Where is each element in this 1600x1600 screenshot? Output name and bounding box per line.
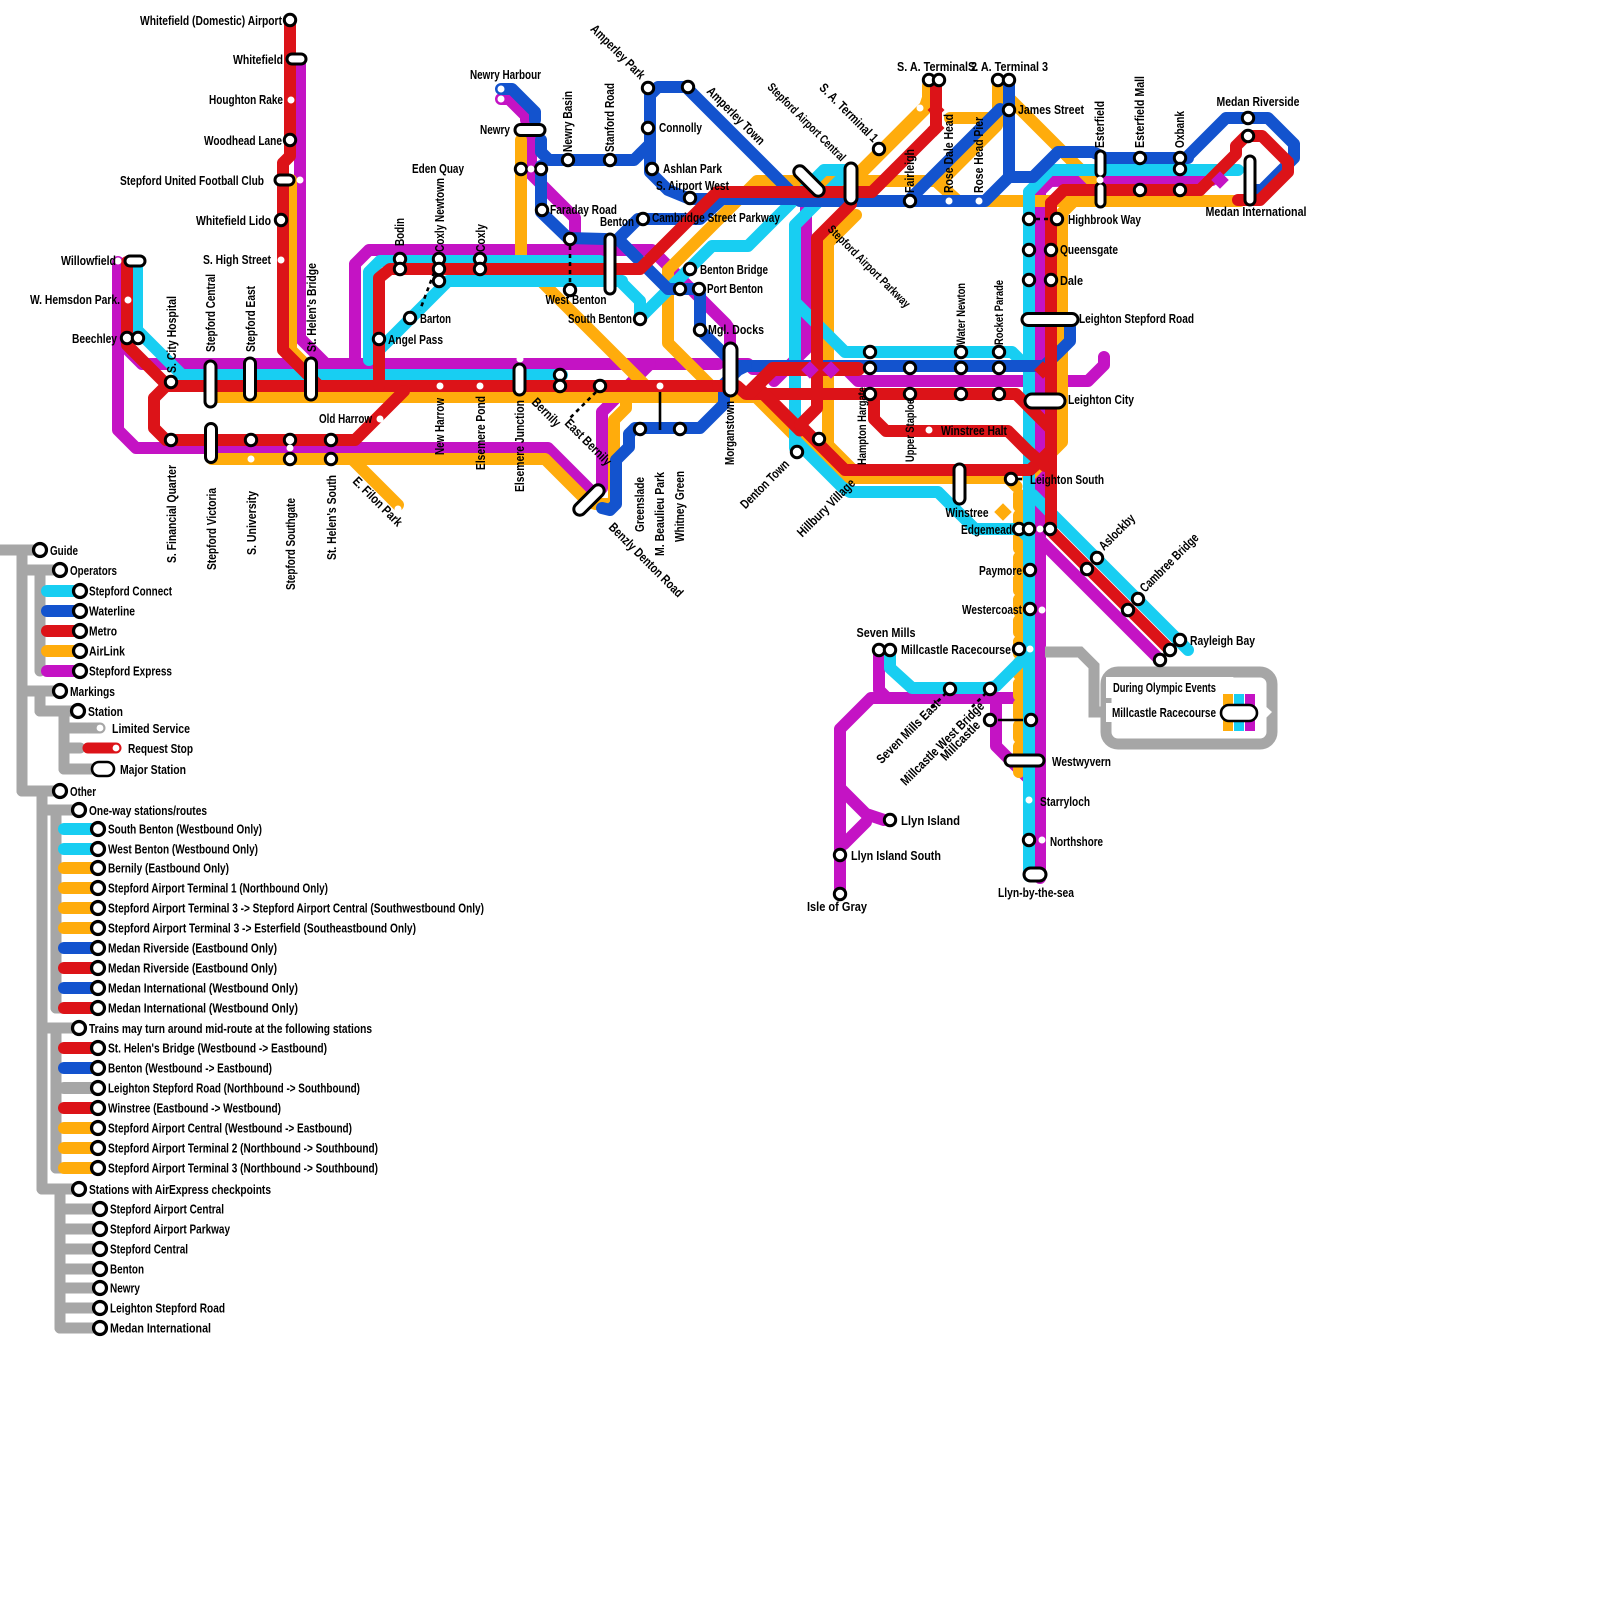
svg-text:South Benton: South Benton xyxy=(568,311,632,326)
svg-text:Isle of Gray: Isle of Gray xyxy=(807,899,868,914)
svg-text:Medan Riverside (Eastbound Onl: Medan Riverside (Eastbound Only) xyxy=(108,941,277,956)
svg-text:Whitney Green: Whitney Green xyxy=(672,471,687,542)
svg-text:Stepford Central: Stepford Central xyxy=(110,1242,188,1257)
svg-text:Oxbank: Oxbank xyxy=(1172,110,1187,148)
svg-text:West Benton: West Benton xyxy=(546,292,607,307)
svg-text:West Benton (Westbound Only): West Benton (Westbound Only) xyxy=(108,842,258,857)
svg-text:Newry: Newry xyxy=(110,1281,141,1296)
svg-text:Mgl. Docks: Mgl. Docks xyxy=(708,322,764,337)
svg-text:During Olympic Events: During Olympic Events xyxy=(1113,680,1216,695)
svg-text:Millcastle Racecourse: Millcastle Racecourse xyxy=(901,642,1011,657)
svg-text:Leighton Stepford Road: Leighton Stepford Road xyxy=(110,1301,225,1316)
svg-text:Markings: Markings xyxy=(70,684,115,699)
svg-text:Stations with AirExpress check: Stations with AirExpress checkpoints xyxy=(89,1182,271,1197)
svg-text:Stepford Airport Terminal 2 (N: Stepford Airport Terminal 2 (Northbound … xyxy=(108,1141,378,1156)
svg-text:Coxly Newtown: Coxly Newtown xyxy=(432,178,447,252)
svg-text:Trains may turn around mid-rou: Trains may turn around mid-route at the … xyxy=(89,1021,372,1036)
svg-text:Beechley: Beechley xyxy=(72,331,118,346)
svg-text:Water Newton: Water Newton xyxy=(954,283,968,345)
svg-text:Major Station: Major Station xyxy=(120,762,186,777)
svg-text:Stepford Connect: Stepford Connect xyxy=(89,584,173,599)
svg-text:Hampton Hargate: Hampton Hargate xyxy=(855,387,869,465)
svg-text:Dale: Dale xyxy=(1060,273,1083,288)
svg-text:Highbrook Way: Highbrook Way xyxy=(1068,212,1142,227)
svg-text:Medan Riverside (Eastbound Onl: Medan Riverside (Eastbound Only) xyxy=(108,961,277,976)
svg-text:Seven Mills: Seven Mills xyxy=(857,625,916,640)
svg-text:Starryloch: Starryloch xyxy=(1040,794,1090,809)
svg-text:Benton: Benton xyxy=(110,1262,144,1277)
svg-text:S. Airport West: S. Airport West xyxy=(656,178,730,193)
svg-text:Medan International (Westbound: Medan International (Westbound Only) xyxy=(108,981,298,996)
svg-text:S. A. Terminal 2: S. A. Terminal 2 xyxy=(897,59,977,74)
svg-text:Willowfield: Willowfield xyxy=(61,253,116,268)
svg-text:Stepford Southgate: Stepford Southgate xyxy=(283,498,298,590)
svg-text:Llyn-by-the-sea: Llyn-by-the-sea xyxy=(998,885,1075,900)
svg-text:Medan International (Westbound: Medan International (Westbound Only) xyxy=(108,1001,298,1016)
svg-text:Leighton Stepford Road: Leighton Stepford Road xyxy=(1079,311,1194,326)
svg-text:Angel Pass: Angel Pass xyxy=(388,332,443,347)
svg-text:Leighton Stepford Road (Northb: Leighton Stepford Road (Northbound -> So… xyxy=(108,1081,360,1096)
svg-text:Stepford Airport Parkway: Stepford Airport Parkway xyxy=(110,1222,231,1237)
svg-text:Metro: Metro xyxy=(89,624,117,639)
svg-text:Benton (Westbound -> Eastbound: Benton (Westbound -> Eastbound) xyxy=(108,1061,272,1076)
svg-text:Operators: Operators xyxy=(70,563,117,578)
svg-text:Leighton South: Leighton South xyxy=(1030,472,1104,487)
svg-text:Benton: Benton xyxy=(600,214,634,229)
svg-text:Eden Quay: Eden Quay xyxy=(412,161,465,176)
svg-text:Old Harrow: Old Harrow xyxy=(319,411,373,426)
svg-text:Elsemere Pond: Elsemere Pond xyxy=(473,396,488,470)
svg-text:Paymore: Paymore xyxy=(979,563,1022,578)
svg-text:Medan International: Medan International xyxy=(110,1321,211,1336)
svg-text:Stepford Airport Terminal 3 (N: Stepford Airport Terminal 3 (Northbound … xyxy=(108,1161,378,1176)
svg-text:Edgemead: Edgemead xyxy=(961,522,1012,537)
svg-text:Other: Other xyxy=(70,784,96,799)
svg-text:Llyn Island South: Llyn Island South xyxy=(851,848,941,863)
svg-text:Waterline: Waterline xyxy=(89,604,135,619)
svg-text:Morganstown: Morganstown xyxy=(722,401,737,465)
svg-text:S. University: S. University xyxy=(244,490,259,555)
svg-text:Stepford Central: Stepford Central xyxy=(203,274,218,352)
svg-text:Elsemere Junction: Elsemere Junction xyxy=(512,400,527,492)
svg-text:Stepford Victoria: Stepford Victoria xyxy=(204,487,219,570)
svg-text:S. Financial Quarter: S. Financial Quarter xyxy=(164,465,179,563)
svg-text:Benton Bridge: Benton Bridge xyxy=(700,262,768,277)
svg-text:St. Helen's South: St. Helen's South xyxy=(324,475,339,560)
svg-text:Limited Service: Limited Service xyxy=(112,721,190,736)
svg-text:Stepford United Football Club: Stepford United Football Club xyxy=(120,173,264,188)
svg-text:Winstree (Eastbound -> Westbou: Winstree (Eastbound -> Westbound) xyxy=(108,1101,281,1116)
svg-text:Woodhead Lane: Woodhead Lane xyxy=(204,133,282,148)
svg-text:St. Helen's Bridge: St. Helen's Bridge xyxy=(304,263,319,352)
svg-text:Houghton Rake: Houghton Rake xyxy=(209,92,283,107)
svg-text:Stepford East: Stepford East xyxy=(243,285,258,352)
svg-text:Stepford Airport Central: Stepford Airport Central xyxy=(110,1202,224,1217)
svg-text:S. City Hospital: S. City Hospital xyxy=(164,296,179,373)
svg-text:Winstree Halt: Winstree Halt xyxy=(941,423,1008,438)
svg-text:Stepford Express: Stepford Express xyxy=(89,664,172,679)
svg-text:Stepford Airport Central (West: Stepford Airport Central (Westbound -> E… xyxy=(108,1121,352,1136)
svg-text:Ashlan Park: Ashlan Park xyxy=(663,161,723,176)
svg-text:Barton: Barton xyxy=(420,311,451,326)
svg-text:Llyn Island: Llyn Island xyxy=(901,813,960,828)
svg-text:South Benton (Westbound Only): South Benton (Westbound Only) xyxy=(108,822,262,837)
svg-text:Whitefield: Whitefield xyxy=(233,52,283,67)
svg-text:S. A. Terminal 3: S. A. Terminal 3 xyxy=(968,59,1048,74)
svg-text:Bodin: Bodin xyxy=(392,218,407,246)
svg-text:Stepford Airport Terminal 3 ->: Stepford Airport Terminal 3 -> Stepford … xyxy=(108,901,484,916)
svg-text:Rose Dale Head: Rose Dale Head xyxy=(941,114,956,193)
svg-text:Rocket Parade: Rocket Parade xyxy=(992,280,1006,345)
svg-text:Westercoast: Westercoast xyxy=(962,602,1023,617)
svg-text:Westwyvern: Westwyvern xyxy=(1052,754,1111,769)
svg-text:St. Helen's Bridge (Westbound: St. Helen's Bridge (Westbound -> Eastbou… xyxy=(108,1041,327,1056)
svg-text:Guide: Guide xyxy=(50,543,78,558)
svg-text:S. High Street: S. High Street xyxy=(203,252,272,267)
svg-text:Millcastle Racecourse: Millcastle Racecourse xyxy=(1112,705,1216,720)
svg-text:Cambridge Street Parkway: Cambridge Street Parkway xyxy=(652,210,781,225)
svg-text:One-way stations/routes: One-way stations/routes xyxy=(89,803,207,818)
svg-text:Esterfield Mall: Esterfield Mall xyxy=(1132,76,1147,148)
svg-text:Upper Staploe: Upper Staploe xyxy=(903,399,917,462)
svg-text:AirLink: AirLink xyxy=(89,644,126,659)
svg-text:Greenslade: Greenslade xyxy=(632,477,647,532)
svg-text:Queensgate: Queensgate xyxy=(1060,242,1118,257)
svg-text:Newry Harbour: Newry Harbour xyxy=(470,67,541,82)
svg-text:Esterfield: Esterfield xyxy=(1092,101,1107,148)
svg-text:Connolly: Connolly xyxy=(659,120,703,135)
svg-text:Medan International: Medan International xyxy=(1206,204,1307,219)
svg-text:Rayleigh Bay: Rayleigh Bay xyxy=(1190,633,1256,648)
svg-text:Port Benton: Port Benton xyxy=(707,281,763,296)
svg-text:Fairleigh: Fairleigh xyxy=(902,149,917,193)
svg-text:Northshore: Northshore xyxy=(1050,834,1103,849)
svg-text:M. Beaulieu Park: M. Beaulieu Park xyxy=(652,471,667,556)
svg-text:New Harrow: New Harrow xyxy=(432,397,447,455)
svg-text:Newry: Newry xyxy=(480,122,511,137)
svg-text:Coxly: Coxly xyxy=(473,223,488,252)
svg-text:Whitefield Lido: Whitefield Lido xyxy=(196,213,271,228)
svg-text:Medan Riverside: Medan Riverside xyxy=(1217,94,1300,109)
svg-text:Request Stop: Request Stop xyxy=(128,741,193,756)
svg-text:Leighton City: Leighton City xyxy=(1068,392,1135,407)
svg-text:Newry Basin: Newry Basin xyxy=(560,91,575,152)
svg-text:Station: Station xyxy=(88,704,123,719)
svg-text:Stepford Airport Terminal 1 (N: Stepford Airport Terminal 1 (Northbound … xyxy=(108,881,328,896)
svg-text:Winstree: Winstree xyxy=(946,505,989,520)
svg-text:Stepford Airport Terminal 3 ->: Stepford Airport Terminal 3 -> Esterfiel… xyxy=(108,921,416,936)
svg-text:Bernily (Eastbound Only): Bernily (Eastbound Only) xyxy=(108,861,229,876)
svg-text:Rose Head Pier: Rose Head Pier xyxy=(971,117,986,193)
svg-text:James Street: James Street xyxy=(1018,102,1085,117)
svg-text:Stanford Road: Stanford Road xyxy=(602,83,617,152)
svg-text:Whitefield (Domestic) Airport: Whitefield (Domestic) Airport xyxy=(140,13,283,28)
svg-text:W. Hemsdon Park.: W. Hemsdon Park. xyxy=(30,292,120,307)
